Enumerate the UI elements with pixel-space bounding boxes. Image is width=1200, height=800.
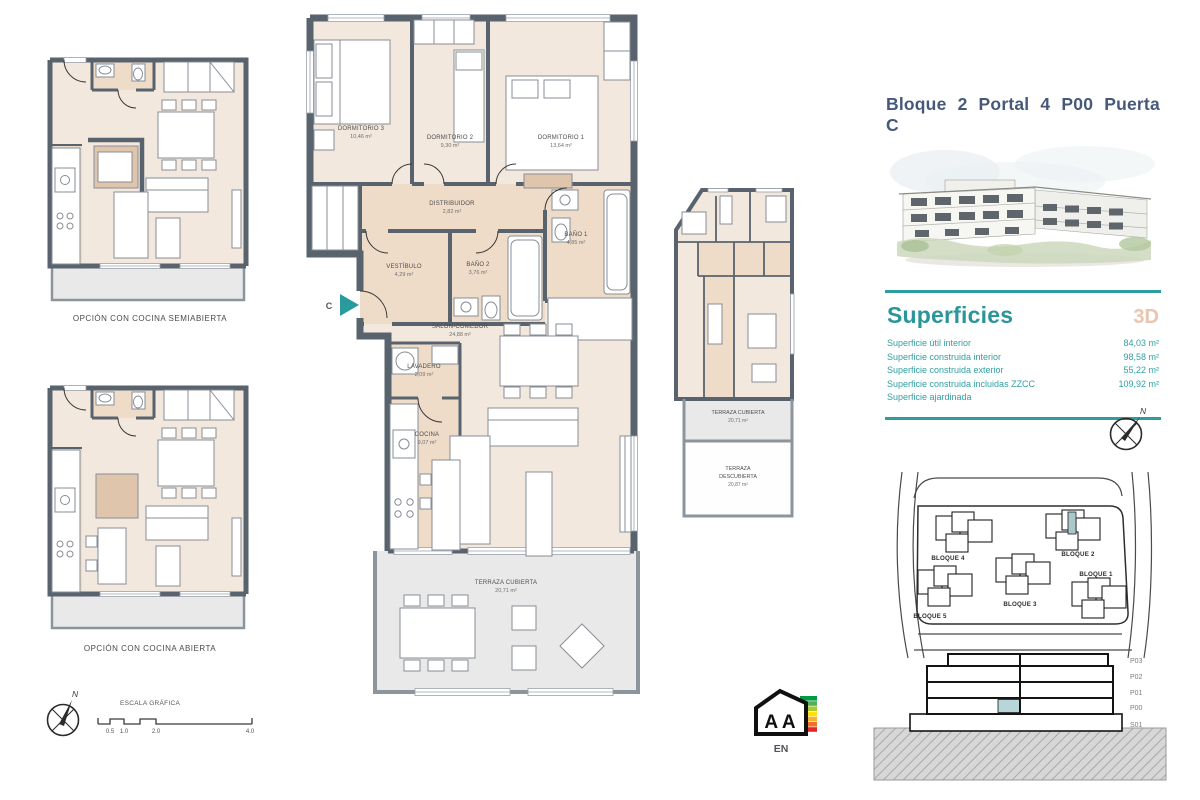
highlighted-unit: [1068, 512, 1076, 534]
mini-terrace-label: TERRAZA CUBIERTA: [711, 410, 765, 416]
plan-sheet: C DORMITORIO 3 10,46 m² DORMITORIO 2 9,3…: [0, 0, 1200, 800]
option-plan-abierta: [40, 378, 260, 636]
mini-terrace2-area: 20,87 m²: [728, 482, 748, 488]
bloque-label: BLOQUE 3: [1003, 601, 1037, 608]
room-label: DORMITORIO 1: [538, 135, 585, 141]
north-label: N: [72, 689, 79, 699]
room-label: DORMITORIO 2: [427, 135, 474, 141]
ground-hatch: [874, 728, 1166, 780]
room-area: 13,64 m²: [550, 143, 572, 149]
scale-bar: ESCALA GRÁFICA 0.5 1.0 2.0 4.0: [92, 694, 267, 742]
bloque-label: BLOQUE 1: [1079, 571, 1113, 578]
entrance-arrow-icon: [340, 294, 359, 316]
superficie-label: Superficie ajardinada: [887, 391, 972, 405]
room-area: 9,30 m²: [441, 143, 460, 149]
option-plan-semiabierta: [40, 50, 260, 308]
room-area: 20,71 m²: [495, 588, 517, 594]
superficie-value: 109,92 m²: [1118, 378, 1159, 392]
superficies-heading: Superficies: [887, 302, 1013, 329]
option-caption-abierta: OPCIÓN CON COCINA ABIERTA: [25, 644, 275, 653]
armchair: [96, 474, 138, 518]
mini-terrace2-label1: TERRAZA: [725, 466, 751, 472]
superficies-3d-tag: 3D: [1133, 306, 1159, 329]
superficies-row: Superficie construida exterior 55,22 m²: [885, 364, 1161, 378]
section-floors: [910, 654, 1122, 731]
room-area: 4,29 m²: [395, 272, 414, 278]
superficies-row: Superficie útil interior 84,03 m²: [885, 337, 1161, 351]
room-area: 4,85 m²: [567, 240, 586, 246]
compass-icon: N: [36, 684, 96, 748]
page-title: Bloque 2 Portal 4 P00 Puerta C: [886, 94, 1176, 136]
room-label: BAÑO 2: [466, 261, 490, 268]
superficie-value: 98,58 m²: [1123, 351, 1159, 365]
energy-label: EN: [774, 743, 789, 755]
level-label: P00: [1130, 705, 1143, 712]
room-area: 9,07 m²: [418, 440, 437, 446]
mini-terrace-area: 20,71 m²: [728, 418, 748, 424]
room-label: BAÑO 1: [564, 231, 588, 238]
room-area: 10,46 m²: [350, 134, 372, 140]
room-area: 3,76 m²: [469, 270, 488, 276]
scale-tick: 1.0: [120, 729, 129, 735]
bloque-label: BLOQUE 4: [931, 555, 965, 562]
superficie-value: 84,03 m²: [1123, 337, 1159, 351]
room-label: LAVADERO: [407, 364, 441, 370]
bloque-label: BLOQUE 2: [1061, 551, 1095, 558]
building-rendering: [885, 142, 1160, 290]
superficies-row: Superficie construida incluidas ZZCC 109…: [885, 378, 1161, 392]
room-label: TERRAZA CUBIERTA: [475, 580, 537, 586]
level-label: P03: [1130, 658, 1143, 665]
scale-tick: 2.0: [152, 729, 161, 735]
superficie-label: Superficie útil interior: [887, 337, 971, 351]
room-label: DORMITORIO 3: [338, 126, 385, 132]
main-floor-plan: C DORMITORIO 3 10,46 m² DORMITORIO 2 9,3…: [300, 6, 646, 714]
energy-rating-icon: A A EN: [750, 684, 822, 758]
scale-tick: 4.0: [246, 729, 255, 735]
superficies-row: Superficie construida interior 98,58 m²: [885, 351, 1161, 365]
site-plan: BLOQUE 4 BLOQUE 2 BLOQUE 5 BLOQUE 3 BLOQ…: [872, 466, 1168, 664]
level-label: P01: [1130, 690, 1143, 697]
north-label: N: [1140, 406, 1147, 416]
superficie-label: Superficie construida incluidas ZZCC: [887, 378, 1035, 392]
room-area: 24,88 m²: [449, 332, 471, 338]
superficie-value: 55,22 m²: [1123, 364, 1159, 378]
level-label: P02: [1130, 674, 1143, 681]
scale-bar-label: ESCALA GRÁFICA: [120, 698, 181, 707]
section-diagram: P03 P02 P01 P00 S01: [872, 652, 1168, 784]
energy-letters: A A: [764, 712, 796, 733]
room-label: COCINA: [415, 432, 440, 438]
level-label: S01: [1130, 722, 1143, 729]
superficie-label: Superficie construida exterior: [887, 364, 1004, 378]
mini-plan: TERRAZA CUBIERTA 20,71 m² TERRAZA DESCUB…: [668, 184, 802, 528]
room-area: 2,82 m²: [443, 209, 462, 215]
bloque-label: BLOQUE 5: [913, 613, 947, 620]
room-label: VESTÍBULO: [386, 263, 422, 270]
room-area: 2,09 m²: [415, 372, 434, 378]
entrance-letter: C: [326, 301, 333, 311]
room-label: DISTRIBUIDOR: [429, 201, 475, 207]
highlighted-floor-unit: [998, 700, 1020, 713]
mini-terrace2-label2: DESCUBIERTA: [719, 474, 757, 480]
room-label: SALÓN-COMEDOR: [432, 323, 489, 330]
scale-tick: 0.5: [106, 729, 115, 735]
bench: [524, 174, 572, 188]
compass-icon: N: [1098, 400, 1158, 460]
superficie-label: Superficie construida interior: [887, 351, 1001, 365]
option-caption-semiabierta: OPCIÓN CON COCINA SEMIABIERTA: [25, 314, 275, 323]
